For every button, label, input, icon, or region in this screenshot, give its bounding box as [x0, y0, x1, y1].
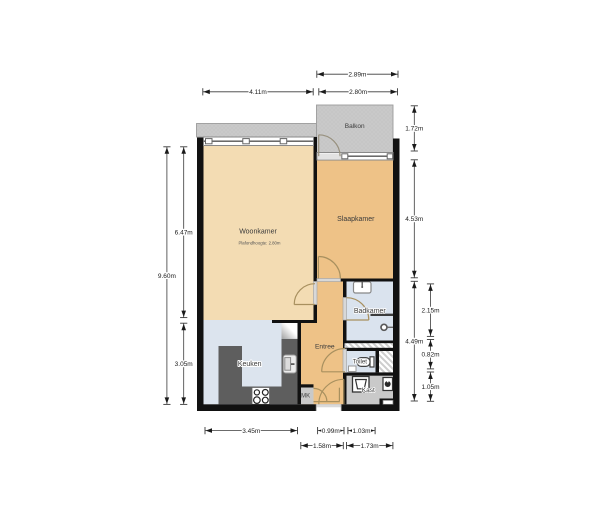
svg-text:Entree: Entree: [315, 343, 335, 350]
svg-text:1.73m: 1.73m: [361, 443, 379, 450]
svg-text:Toilet: Toilet: [353, 359, 368, 366]
svg-text:1.03m: 1.03m: [352, 428, 370, 435]
svg-text:2.15m: 2.15m: [421, 307, 439, 314]
svg-text:MK: MK: [301, 394, 310, 400]
svg-text:3.45m: 3.45m: [242, 428, 260, 435]
svg-text:4.53m: 4.53m: [405, 216, 423, 223]
svg-text:Kast: Kast: [362, 387, 375, 394]
svg-text:Badkamer: Badkamer: [354, 308, 387, 315]
svg-text:Slaapkamer: Slaapkamer: [337, 216, 375, 223]
svg-text:Plafondhoogte: 2.80m: Plafondhoogte: 2.80m: [238, 241, 280, 246]
svg-text:1.05m: 1.05m: [421, 384, 439, 391]
svg-text:Balkon: Balkon: [345, 123, 365, 130]
svg-text:9.60m: 9.60m: [158, 273, 176, 280]
svg-text:Keuken: Keuken: [238, 361, 262, 368]
svg-text:6.47m: 6.47m: [175, 230, 193, 237]
svg-text:2.80m: 2.80m: [349, 89, 367, 96]
svg-text:2.89m: 2.89m: [348, 72, 366, 79]
svg-text:3.05m: 3.05m: [175, 361, 193, 368]
svg-text:4.49m: 4.49m: [405, 338, 423, 345]
svg-text:0.99m: 0.99m: [322, 428, 340, 435]
svg-text:Woonkamer: Woonkamer: [239, 229, 277, 236]
svg-text:4.11m: 4.11m: [249, 89, 267, 96]
svg-text:1.58m: 1.58m: [313, 443, 331, 450]
svg-text:0.82m: 0.82m: [421, 352, 439, 359]
svg-text:1.72m: 1.72m: [405, 126, 423, 133]
